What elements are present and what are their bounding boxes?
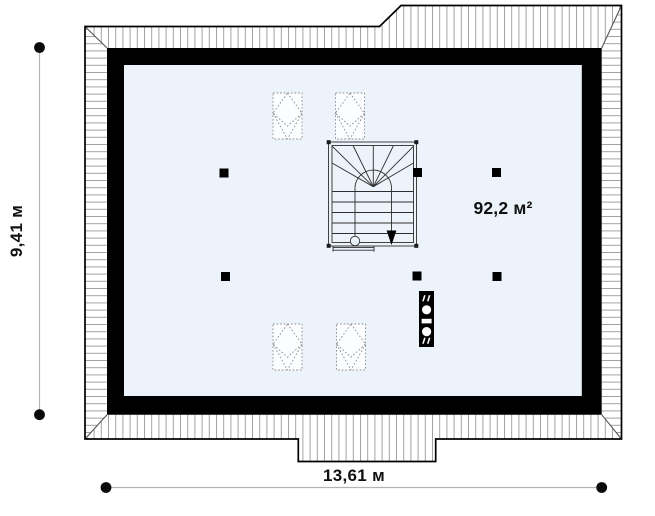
dimension-endpoint <box>34 409 45 420</box>
chimney-flue-top <box>422 305 431 314</box>
height-dimension-label: 9,41 м <box>7 191 27 271</box>
structural-post <box>413 168 422 177</box>
vertical-dimension <box>34 42 45 420</box>
structural-post <box>220 169 229 178</box>
structural-post <box>413 272 422 281</box>
floor-plan-page: 9,41 м 13,61 м 92,2 м² <box>0 0 655 516</box>
roof-window <box>337 324 366 370</box>
roof-window <box>273 93 302 139</box>
roof-window <box>273 324 302 370</box>
roof-overhang-bottom <box>85 415 622 462</box>
chimney-flue-bottom <box>422 327 431 336</box>
structural-post <box>221 272 230 281</box>
dimension-endpoint <box>34 42 45 53</box>
dimension-endpoint <box>596 482 607 493</box>
area-label: 92,2 м² <box>442 198 564 222</box>
roof-overhang-right <box>602 6 622 440</box>
width-dimension-label: 13,61 м <box>294 466 414 486</box>
roof-overhang-left <box>85 27 107 440</box>
chimney-block <box>419 291 434 347</box>
dimension-endpoint <box>101 482 112 493</box>
chimney-divider <box>422 319 432 324</box>
structural-post <box>493 272 502 281</box>
roof-window <box>336 93 365 139</box>
structural-post <box>492 168 501 177</box>
walkline-start-marker <box>350 236 359 245</box>
floor-plan-drawing <box>0 0 655 516</box>
